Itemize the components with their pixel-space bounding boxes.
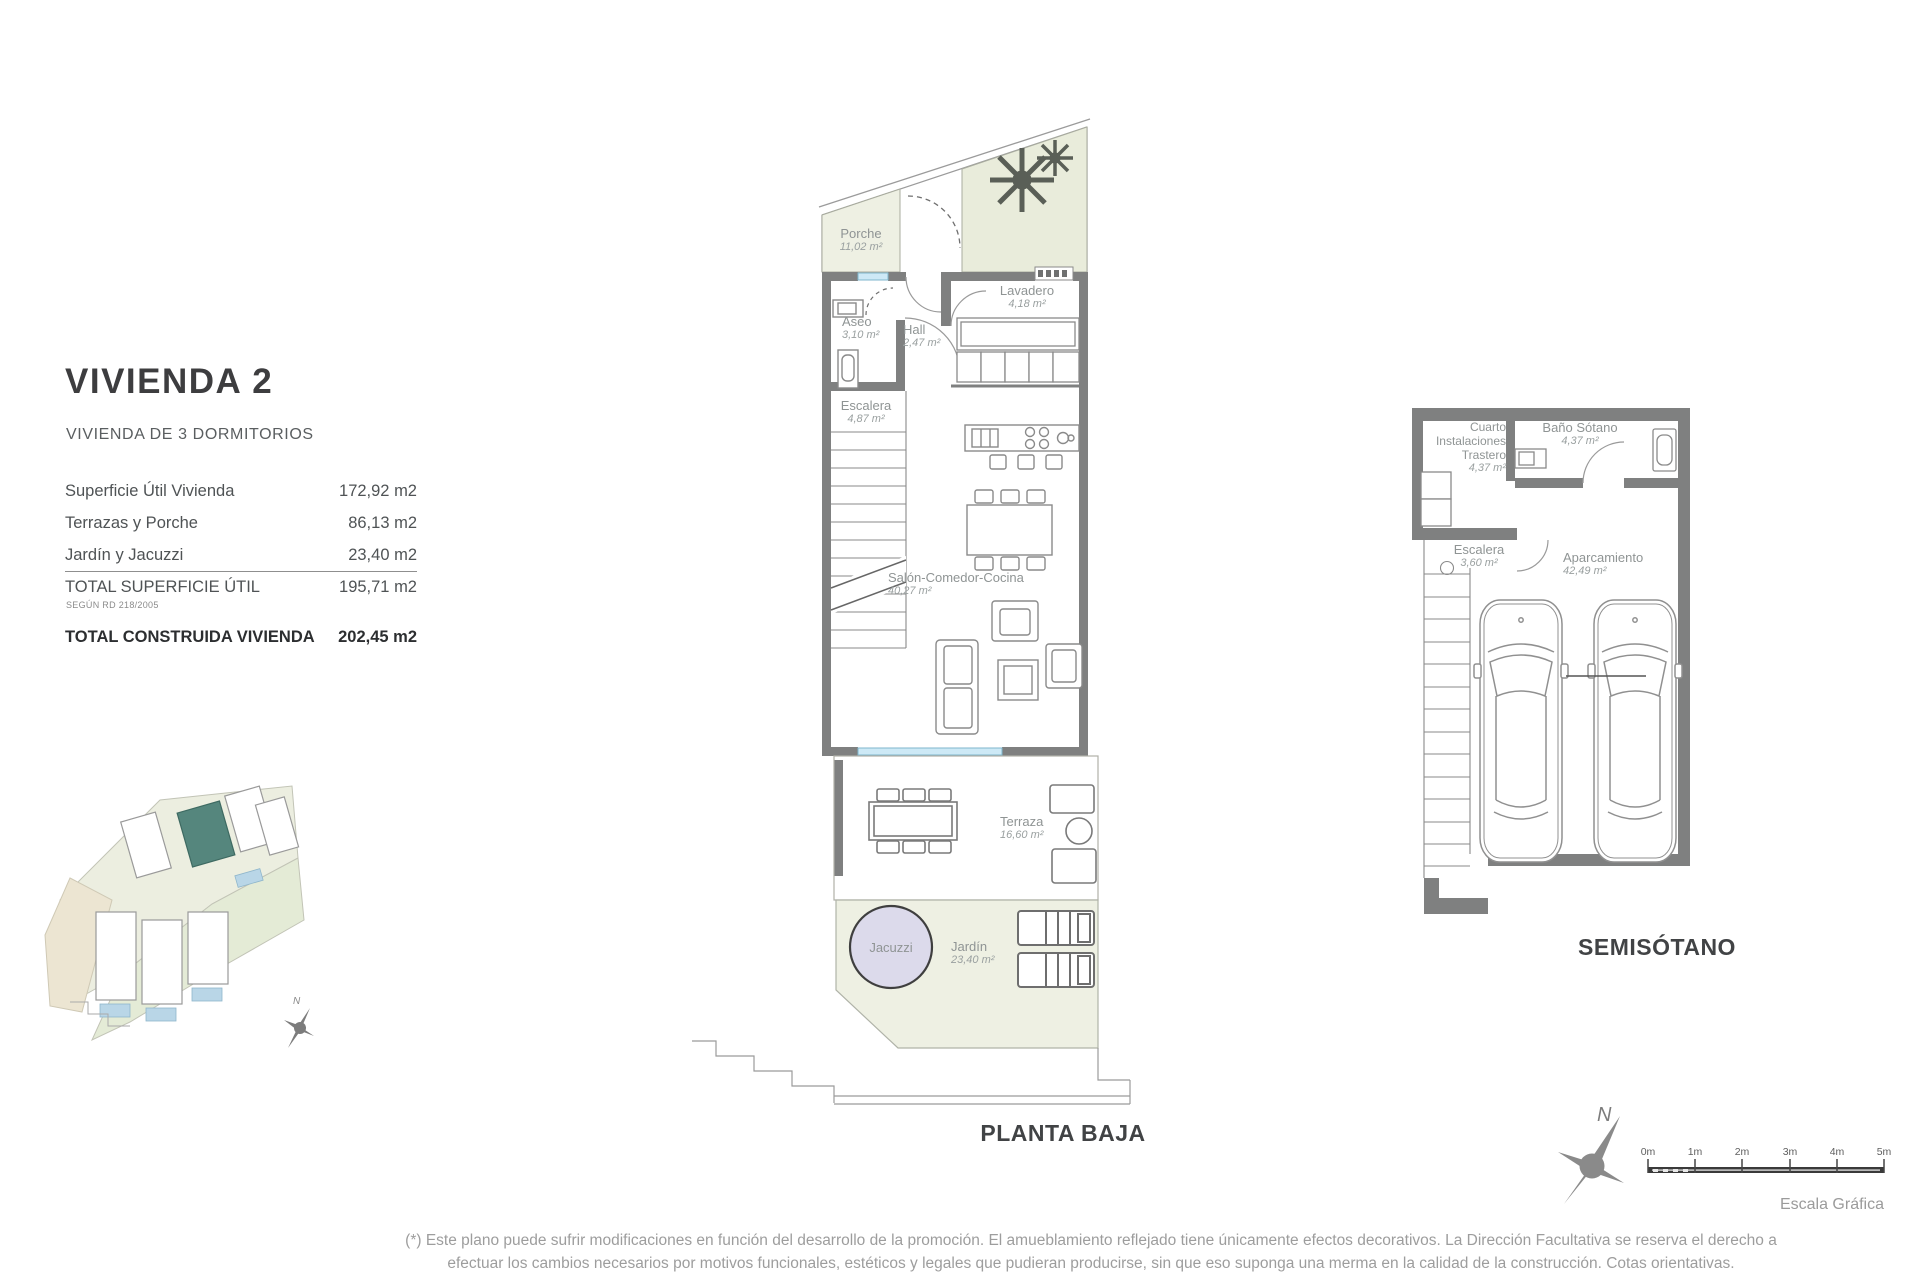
total-construida-value: 202,45 m2 bbox=[338, 628, 417, 647]
room-label-terraza: Terraza 16,60 m² bbox=[1000, 814, 1043, 842]
room-label-salon: Salón-Comedor-Cocina 40,27 m² bbox=[888, 570, 1024, 598]
room-label-escalera-pb: Escalera 4,87 m² bbox=[830, 398, 902, 426]
dining-table bbox=[967, 490, 1052, 570]
terraza-furniture bbox=[869, 785, 1096, 883]
room-label-aparcamiento: Aparcamiento 42,49 m² bbox=[1563, 550, 1643, 578]
area-row-label: Superficie Útil Vivienda bbox=[65, 482, 234, 501]
divider bbox=[65, 571, 417, 572]
page-title: VIVIENDA 2 bbox=[65, 362, 273, 402]
room-label-lavadero: Lavadero 4,18 m² bbox=[982, 283, 1072, 311]
area-row-label: Jardín y Jacuzzi bbox=[65, 546, 183, 565]
area-row: Jardín y Jacuzzi 23,40 m2 bbox=[65, 546, 417, 565]
area-row-label: Terrazas y Porche bbox=[65, 514, 198, 533]
scale-tick-3m: 3m bbox=[1775, 1146, 1805, 1158]
entry-gate-swing bbox=[908, 196, 960, 248]
room-label-porche: Porche 11,02 m² bbox=[824, 226, 898, 254]
scale-bar bbox=[1648, 1159, 1884, 1173]
area-row-value: 23,40 m2 bbox=[348, 546, 417, 565]
page-subtitle: VIVIENDA DE 3 DORMITORIOS bbox=[66, 426, 314, 444]
planta-baja-title: PLANTA BAJA bbox=[958, 1120, 1168, 1147]
room-label-jacuzzi: Jacuzzi bbox=[854, 940, 928, 955]
lavadero-counter bbox=[957, 318, 1079, 382]
room-label-trastero: Cuarto Instalaciones Trastero 4,37 m² bbox=[1428, 420, 1506, 475]
scale-tick-4m: 4m bbox=[1822, 1146, 1852, 1158]
vent-grille bbox=[1035, 267, 1073, 280]
site-plan bbox=[45, 786, 314, 1048]
total-util-label: TOTAL SUPERFICIE ÚTIL bbox=[65, 578, 260, 597]
scale-tick-1m: 1m bbox=[1680, 1146, 1710, 1158]
area-row: Terrazas y Porche 86,13 m2 bbox=[65, 514, 417, 533]
area-row-value: 86,13 m2 bbox=[348, 514, 417, 533]
disclaimer-line-1: (*) Este plano puede sufrir modificacion… bbox=[326, 1229, 1856, 1252]
disclaimer-line-2: efectuar los cambios necesarios por moti… bbox=[326, 1252, 1856, 1275]
stairs-semisotano bbox=[1424, 540, 1470, 878]
area-row-value: 172,92 m2 bbox=[339, 482, 417, 501]
stairs-planta-baja bbox=[831, 391, 906, 648]
planta-baja-plan bbox=[692, 119, 1130, 1104]
room-label-bano-sotano: Baño Sótano 4,37 m² bbox=[1538, 420, 1622, 448]
floor-plan-sheet: VIVIENDA 2 VIVIENDA DE 3 DORMITORIOS Sup… bbox=[0, 0, 1920, 1280]
scale-tick-5m: 5m bbox=[1869, 1146, 1899, 1158]
scale-tick-0m: 0m bbox=[1633, 1146, 1663, 1158]
total-util-row: TOTAL SUPERFICIE ÚTIL 195,71 m2 bbox=[65, 578, 417, 597]
lower-boundary bbox=[692, 1041, 1130, 1104]
disclaimer: (*) Este plano puede sufrir modificacion… bbox=[326, 1229, 1856, 1275]
sofa-group bbox=[936, 601, 1082, 734]
total-construida-label: TOTAL CONSTRUIDA VIVIENDA bbox=[65, 628, 315, 647]
room-label-jardin: Jardín 23,40 m² bbox=[951, 939, 994, 967]
aseo-door-swing bbox=[866, 288, 893, 315]
total-construida-row: TOTAL CONSTRUIDA VIVIENDA 202,45 m2 bbox=[65, 628, 417, 647]
trastero-shelves bbox=[1421, 472, 1451, 526]
mini-north-label: N bbox=[293, 996, 300, 1007]
parked-car bbox=[1588, 600, 1682, 862]
room-label-aseo: Aseo 3,10 m² bbox=[842, 314, 879, 342]
regulation-note: SEGÚN RD 218/2005 bbox=[66, 600, 159, 610]
scale-tick-2m: 2m bbox=[1727, 1146, 1757, 1158]
semisotano-title: SEMISÓTANO bbox=[1552, 934, 1762, 961]
room-label-hall: Hall 2,47 m² bbox=[903, 322, 940, 350]
semisotano-plan bbox=[1412, 408, 1690, 914]
north-label: N bbox=[1597, 1104, 1611, 1127]
parked-car bbox=[1474, 600, 1568, 862]
north-compass-icon bbox=[1558, 1116, 1624, 1204]
total-util-value: 195,71 m2 bbox=[339, 578, 417, 597]
area-row: Superficie Útil Vivienda 172,92 m2 bbox=[65, 482, 417, 501]
scale-caption: Escala Gráfica bbox=[1732, 1196, 1884, 1214]
room-label-escalera-ss: Escalera 3,60 m² bbox=[1443, 542, 1515, 570]
info-panel: VIVIENDA 2 VIVIENDA DE 3 DORMITORIOS Sup… bbox=[65, 362, 417, 662]
kitchen-island bbox=[965, 425, 1079, 469]
mini-compass-icon bbox=[284, 1008, 314, 1048]
